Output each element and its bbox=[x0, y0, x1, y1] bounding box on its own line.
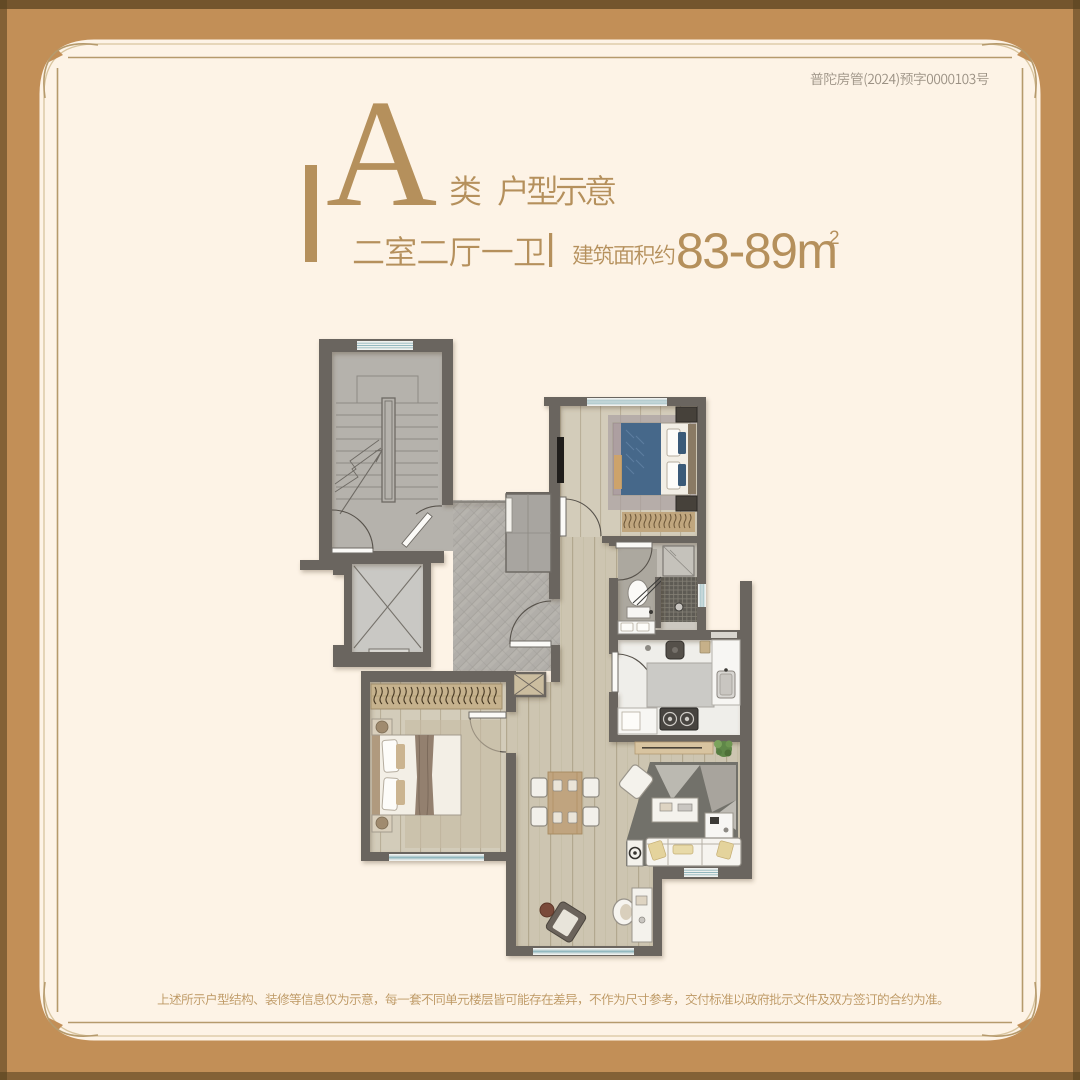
svg-text:83-89m: 83-89m bbox=[676, 223, 837, 279]
svg-text:A: A bbox=[326, 69, 437, 239]
svg-text:2: 2 bbox=[829, 228, 840, 249]
